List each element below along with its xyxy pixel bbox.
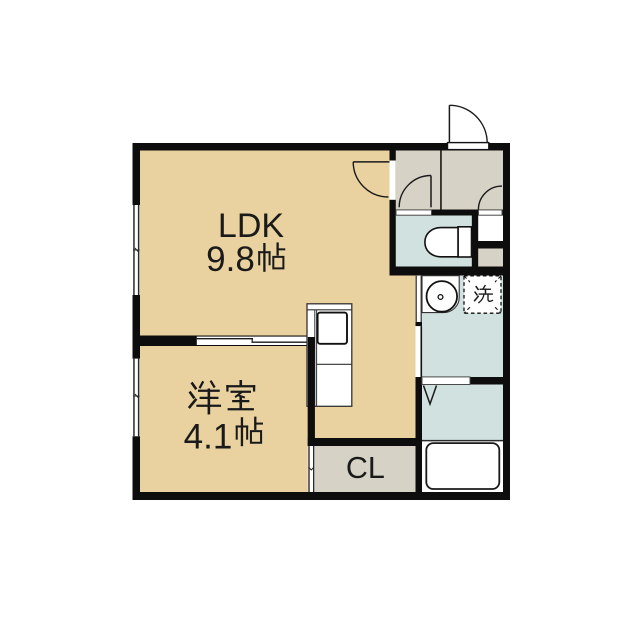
- svg-text:CL: CL: [346, 451, 385, 485]
- svg-text:9.8: 9.8: [206, 240, 255, 279]
- svg-text:4.1: 4.1: [184, 418, 233, 457]
